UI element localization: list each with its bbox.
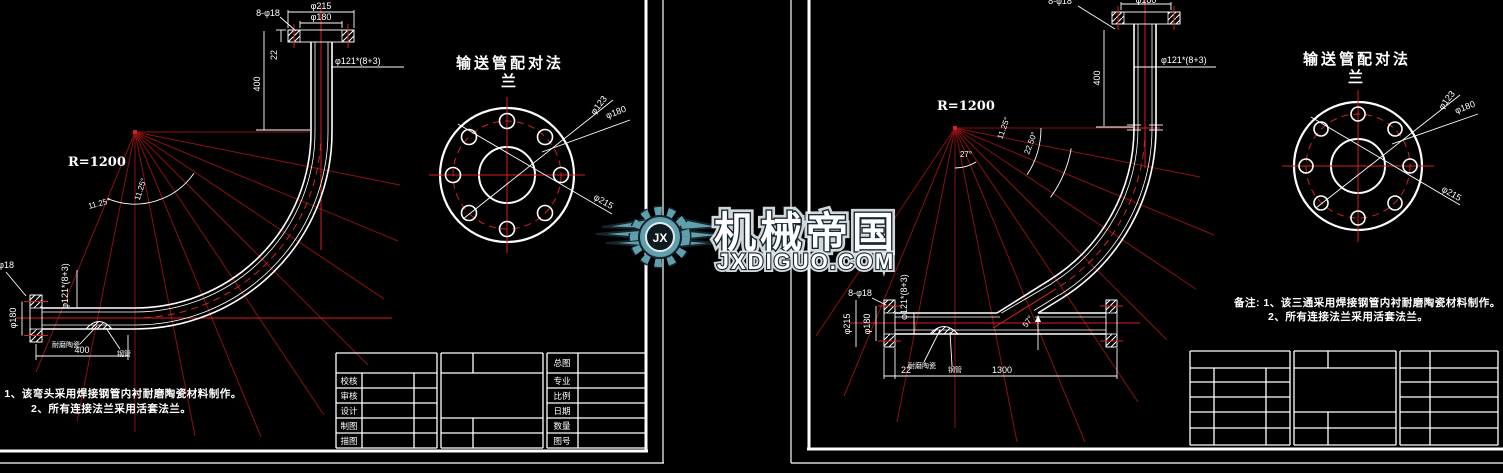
dim-top-bolts: 8-φ18 <box>256 8 280 18</box>
flange-title-line1: 输送管配对法 <box>456 54 564 72</box>
tb-spec: 专业 <box>553 376 570 386</box>
note-line-2: 2、所有连接法兰采用活套法兰。 <box>31 402 191 415</box>
flange-dim-bcd: φ180 <box>1453 99 1476 116</box>
angle-fan: 27° <box>960 150 972 159</box>
angle-2250: 22.50° <box>1022 131 1038 156</box>
lining-label: 耐磨陶瓷 <box>908 361 936 370</box>
steel-label: 钢管 <box>117 349 131 358</box>
flange-title-line1: 输送管配对法 <box>1303 50 1411 68</box>
left-notes: 注: 1、该弯头采用焊接钢管内衬耐磨陶瓷材料制作。 2、所有连接法兰采用活套法兰… <box>0 387 242 415</box>
dim-bot-bolts: 8-φ18 <box>848 288 872 298</box>
angle-label-1: 11.25° <box>87 196 111 211</box>
dim-top-bcd: φ180 <box>311 12 332 22</box>
flange-dim-bcd: φ180 <box>604 104 627 121</box>
right-notes: 备注: 1、该三通采用焊接钢管内衬耐磨陶瓷材料制作。 2、所有连接法兰采用活套法… <box>1233 296 1501 323</box>
dim-top-bolts: 8-φ18 <box>1048 0 1072 6</box>
dim-top-od: φ215 <box>311 1 332 11</box>
watermark-logo: JX 机械帝国 机械帝国 JXDIGUO.COM JXDIGUO.COM <box>596 209 898 274</box>
flange-title-line2: 兰 <box>501 72 519 90</box>
tb-dwgno: 图号 <box>553 436 570 446</box>
tb-review: 审核 <box>340 391 358 401</box>
tb-check: 校核 <box>340 376 358 386</box>
tb-draft: 制图 <box>340 421 357 431</box>
dim-bot-pipe: φ121*(8+3) <box>899 274 909 320</box>
tb-qty: 数量 <box>553 421 571 431</box>
right-elbow-dimensions: φ180 8-φ18 400 φ121*(8+3) R=1200 27° 11.… <box>842 0 1216 379</box>
dim-bot-od: φ215 <box>842 314 852 335</box>
left-flange-view: 输送管配对法 兰 φ123 φ180 φ215 <box>429 54 630 253</box>
tb-general: 总图 <box>553 358 570 368</box>
dim-bot-bolts: 8-φ18 <box>0 260 14 270</box>
flange-dim-od: φ215 <box>592 192 615 211</box>
tb-trace: 描图 <box>340 436 357 446</box>
logo-monogram: JX <box>653 231 668 245</box>
cad-canvas: φ215 φ180 8-φ18 22 400 φ121*(8+3) R=1200… <box>0 0 1503 473</box>
title-block-grid <box>336 353 646 448</box>
steel-label: 钢管 <box>948 365 962 374</box>
dim-top-od: φ180 <box>1136 0 1157 5</box>
dim-top-len: 400 <box>1092 70 1102 85</box>
tb-scale: 比例 <box>553 391 570 401</box>
right-title-block <box>1190 351 1498 445</box>
cad-drawing: φ215 φ180 8-φ18 22 400 φ121*(8+3) R=1200… <box>0 0 1503 473</box>
flange-title-line2: 兰 <box>1348 68 1366 86</box>
lining-label: 耐磨陶瓷 <box>52 340 80 349</box>
radius-label: R=1200 <box>68 155 126 170</box>
tb-date: 日期 <box>553 406 570 416</box>
note-line-2: 2、所有连接法兰采用活套法兰。 <box>1268 310 1428 323</box>
dim-bot-pipe: φ121*(8+3) <box>60 263 70 309</box>
left-title-block: 总图 校核 审核 设计 制图 描图 专业 比例 日期 数量 图号 <box>336 353 646 448</box>
note-line-1: 备注: 1、该三通采用焊接钢管内衬耐磨陶瓷材料制作。 <box>1233 296 1501 309</box>
dim-top-thk: 22 <box>269 50 279 60</box>
left-elbow-dimensions: φ215 φ180 8-φ18 22 400 φ121*(8+3) R=1200… <box>0 1 404 360</box>
dim-top-len: 400 <box>252 76 262 91</box>
dim-bot-bcd: φ180 <box>8 308 18 329</box>
dim-top-pipe: φ121*(8+3) <box>335 56 381 66</box>
note-line-1: 注: 1、该弯头采用焊接钢管内衬耐磨陶瓷材料制作。 <box>0 387 242 400</box>
right-flange-view: 输送管配对法 兰 φ123 φ180 φ215 <box>1282 50 1478 242</box>
dim-bot-len: 1300 <box>992 365 1012 375</box>
logo-domain: JXDIGUO.COM <box>717 249 895 274</box>
tb-design: 设计 <box>340 406 358 416</box>
dim-top-pipe: φ121*(8+3) <box>1161 55 1207 65</box>
dim-bot-bcd: φ180 <box>862 314 872 335</box>
radius-label: R=1200 <box>937 99 995 114</box>
